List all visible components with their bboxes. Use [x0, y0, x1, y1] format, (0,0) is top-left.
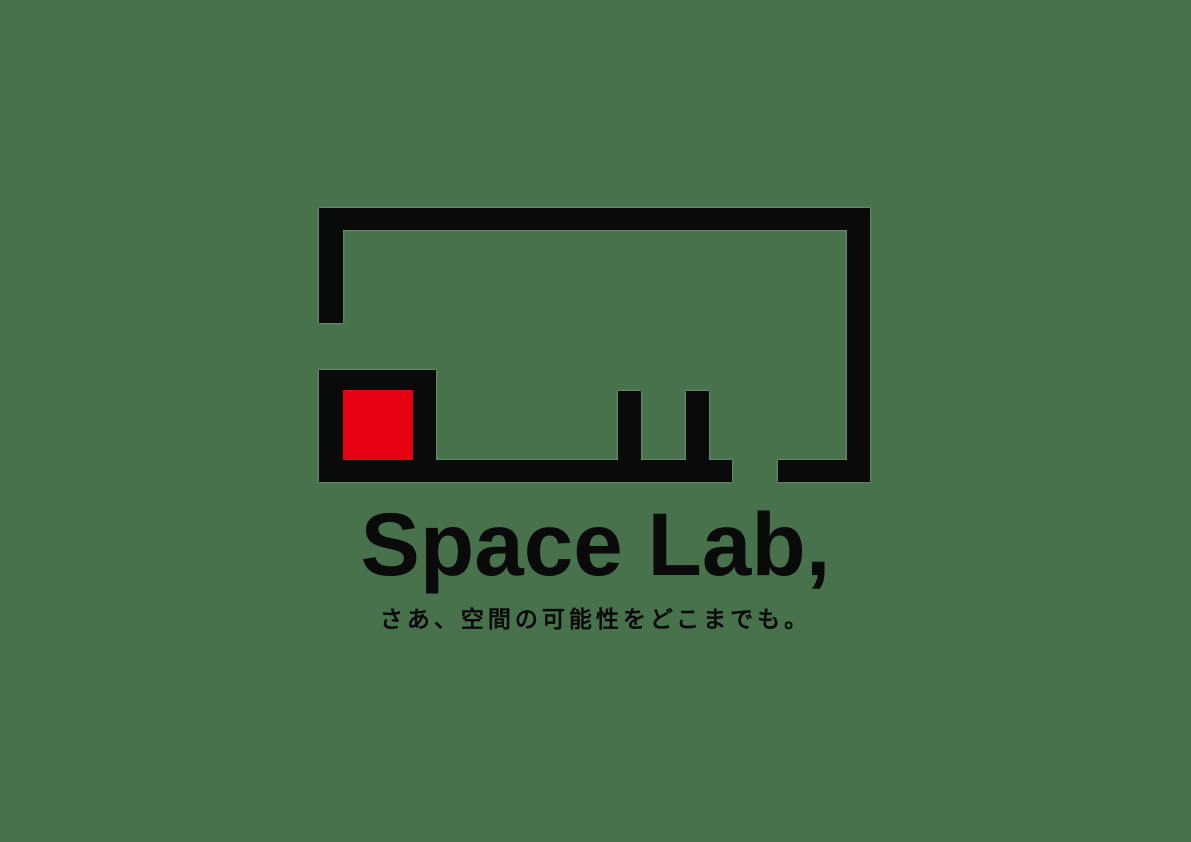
logo-tagline: さあ、空間の可能性をどこまでも。 — [0, 606, 1191, 634]
red-square-icon — [343, 390, 413, 460]
mark-pillar-1-icon — [618, 391, 641, 460]
mark-bottom-wall-left-icon — [319, 460, 732, 482]
mark-left-wall-icon — [319, 208, 343, 323]
logo-mark — [319, 208, 870, 482]
logo-wordmark: Space Lab, — [0, 500, 1191, 589]
mark-bottom-wall-right-icon — [778, 460, 870, 482]
mark-right-wall-icon — [847, 208, 870, 482]
mark-pillar-2-icon — [686, 391, 709, 460]
space-lab-logo: Space Lab, さあ、空間の可能性をどこまでも。 — [0, 0, 1191, 842]
mark-corner-square-left-icon — [319, 370, 343, 482]
mark-corner-square-right-icon — [413, 370, 436, 482]
mark-top-wall-icon — [319, 208, 870, 230]
